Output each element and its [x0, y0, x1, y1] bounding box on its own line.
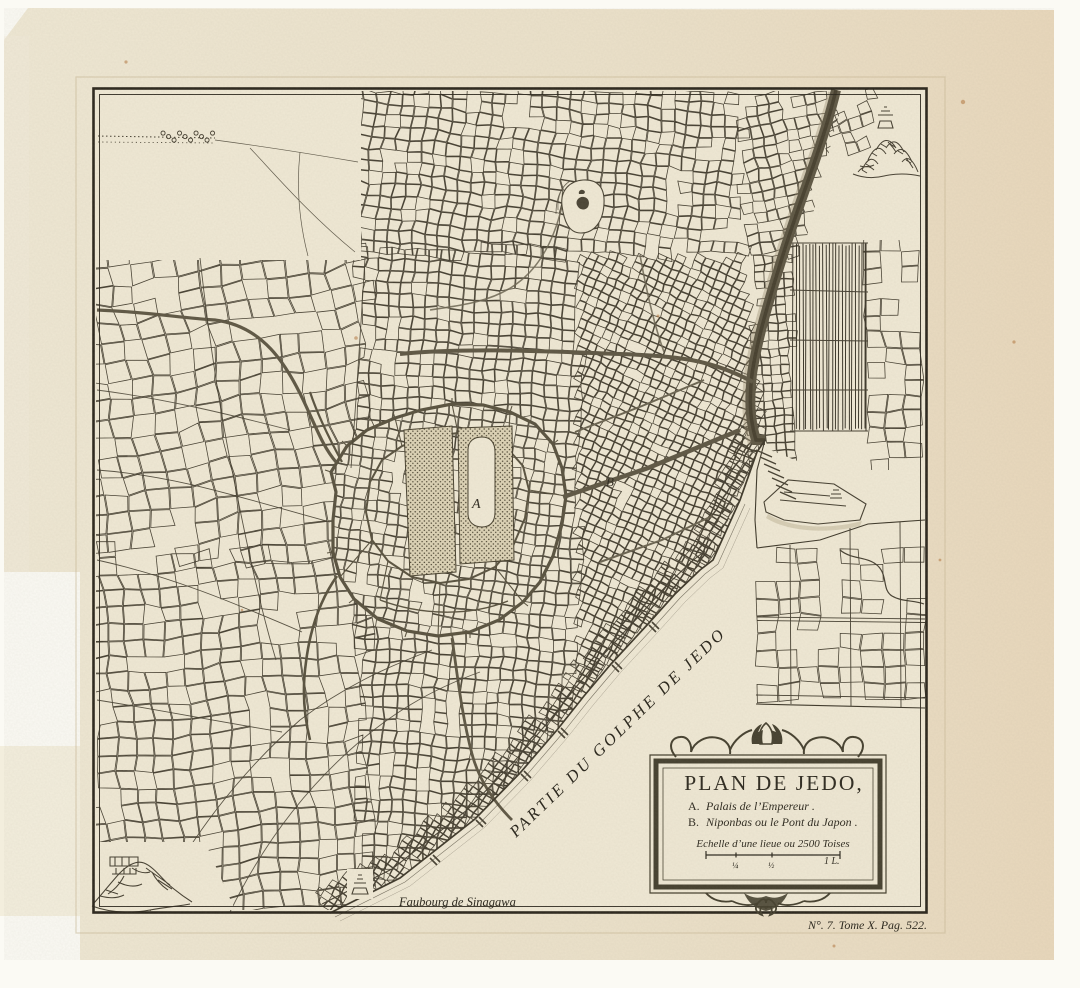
svg-text:N°. 7. Tome X. Pag. 522.: N°. 7. Tome X. Pag. 522. — [807, 918, 927, 932]
svg-text:Faubourg de Sinagawa: Faubourg de Sinagawa — [398, 895, 516, 909]
